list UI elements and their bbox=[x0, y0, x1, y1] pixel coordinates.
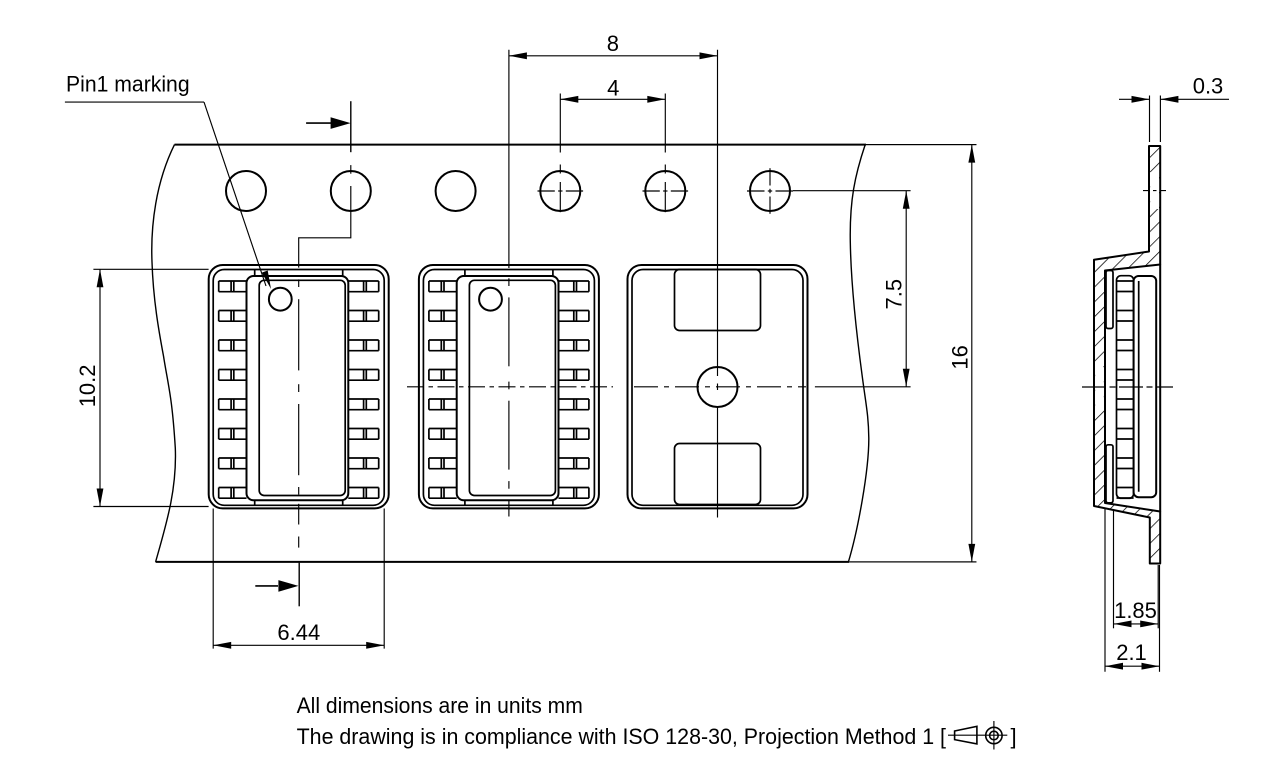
svg-text:Pin1 marking: Pin1 marking bbox=[66, 72, 190, 97]
svg-text:All dimensions are in units mm: All dimensions are in units mm bbox=[297, 693, 583, 718]
svg-text:2.1: 2.1 bbox=[1116, 640, 1147, 665]
svg-text:]: ] bbox=[1011, 724, 1017, 749]
svg-text:8: 8 bbox=[607, 31, 619, 56]
svg-text:10.2: 10.2 bbox=[75, 364, 100, 407]
svg-text:6.44: 6.44 bbox=[277, 620, 320, 645]
svg-text:16: 16 bbox=[947, 345, 972, 369]
svg-text:1.85: 1.85 bbox=[1114, 598, 1157, 623]
svg-text:0.3: 0.3 bbox=[1193, 73, 1224, 98]
svg-text:7.5: 7.5 bbox=[882, 279, 907, 310]
svg-text:The drawing is in compliance w: The drawing is in compliance with ISO 12… bbox=[297, 724, 946, 749]
svg-text:4: 4 bbox=[607, 76, 619, 101]
